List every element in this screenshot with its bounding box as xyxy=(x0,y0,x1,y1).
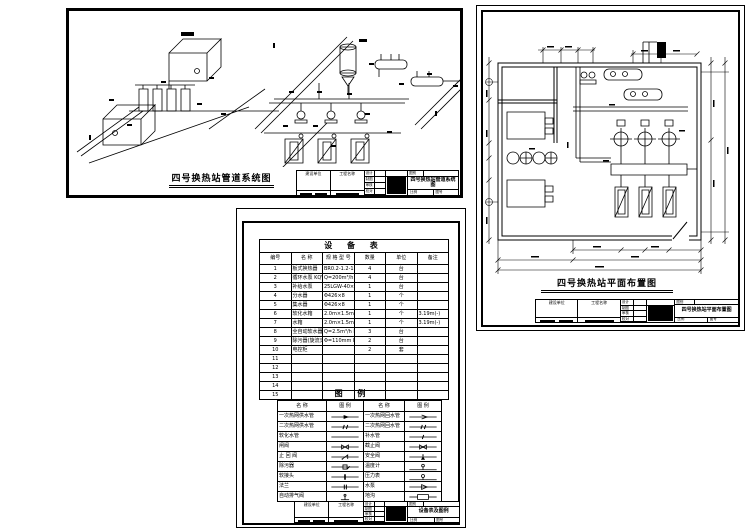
equipment-cell: 软化水箱 xyxy=(291,310,323,319)
equipment-cell xyxy=(386,364,418,373)
equipment-cell xyxy=(417,364,449,373)
equipment-cell xyxy=(323,373,355,382)
legend-symbol-cell xyxy=(405,412,442,422)
equipment-cell: 补给水泵 xyxy=(291,283,323,292)
tb-signature-row: 校对 xyxy=(621,317,646,323)
equipment-col-header: 规 格 型 号 xyxy=(323,253,355,265)
tb-project-cell: 工程名称 xyxy=(578,300,620,322)
legend-name: 闸阀 xyxy=(278,442,327,452)
equipment-col-header: 数量 xyxy=(354,253,386,265)
equipment-cell: 12 xyxy=(260,364,292,373)
drawing-title-plan: 四号换热站平面布置图 xyxy=(541,276,673,293)
tb-project-cell: 工程名称 xyxy=(331,171,365,195)
legend-row: 软化水管补水管 xyxy=(278,432,442,442)
equipment-cell: 1 xyxy=(260,265,292,274)
equipment-cell: 4 xyxy=(354,265,386,274)
equipment-row: 5集水器Φ426×81个 xyxy=(260,301,449,310)
legend-symbol-tick2 xyxy=(408,423,438,431)
equipment-cell: 7 xyxy=(260,319,292,328)
annotation-marks xyxy=(89,39,458,147)
equipment-cell xyxy=(386,373,418,382)
tb-title-area: 图别四号换热站管道系统图比例图号 xyxy=(408,171,458,195)
legend-col-header: 名 称 xyxy=(278,401,327,412)
equipment-cell: 集水器 xyxy=(291,301,323,310)
legend-symbol-cell xyxy=(327,492,364,502)
equipment-cell xyxy=(417,292,449,301)
legend-col-header: 图 例 xyxy=(405,401,442,412)
equipment-cell: 板式换热器 xyxy=(291,265,323,274)
equipment-cell: 13 xyxy=(260,373,292,382)
legend-symbol-gauge xyxy=(408,473,438,481)
equipment-cell: 8 xyxy=(260,328,292,337)
plan-top-equipment xyxy=(573,42,688,111)
legend-name: 安全阀 xyxy=(364,452,405,462)
equipment-cell: 分水器 xyxy=(291,292,323,301)
equipment-cell: Q=200m³/h H=25.8m N=22kW xyxy=(323,274,355,283)
legend-row: 二次热网供水管二次热网回水管 xyxy=(278,422,442,432)
equipment-cell: 循环水泵 KQW200/258-22/4-WALE xyxy=(291,274,323,283)
titleblock-plan: 建设单位工程名称设计制图审核校对图别四号换热站平面布置图比例图号 xyxy=(535,299,739,323)
equipment-cell xyxy=(291,355,323,364)
legend-row: 闸阀截止阀 xyxy=(278,442,442,452)
equipment-cell: 2.0m×1.5m×1.5m 钢板焊制 xyxy=(323,310,355,319)
equipment-cell: 全自动软水器 DXZR-160 xyxy=(291,328,323,337)
titleblock-system: 建设单位工程名称设计制图审核校对图别四号换热站管道系统图比例图号 xyxy=(296,170,459,196)
equipment-cell: 1 xyxy=(354,310,386,319)
legend-name: 止 回 阀 xyxy=(278,452,327,462)
equipment-cell: 3.19m(-) xyxy=(417,310,449,319)
legend-name: 法兰 xyxy=(278,482,327,492)
equipment-cell xyxy=(386,355,418,364)
isometric-piping-drawing xyxy=(69,11,460,167)
equipment-cell xyxy=(417,346,449,355)
tb-stamp xyxy=(648,306,673,322)
legend-name: 自动排气阀 xyxy=(278,492,327,502)
legend-symbol-thermo xyxy=(408,463,438,471)
tb-stamp xyxy=(387,177,407,194)
tb-org-cell: 建设单位 xyxy=(536,300,578,322)
equipment-cell xyxy=(417,274,449,283)
legend-name: 补水管 xyxy=(364,432,405,442)
equipment-table: 设 备 表编号名 称规 格 型 号数量单位备注1板式换热器BR0.2-1.2-1… xyxy=(259,239,449,400)
legend-table: 名 称图 例名 称图 例一次热网供水管一次热网回水管二次热网供水管二次热网回水管… xyxy=(277,400,442,502)
equipment-cell: 4 xyxy=(354,274,386,283)
plan-left-equipment xyxy=(507,112,557,207)
legend-name: 地沟 xyxy=(364,492,405,502)
legend-symbol-cell xyxy=(327,452,364,462)
equipment-cell: Q=2.5m³/h DN=40mm xyxy=(323,328,355,337)
equipment-cell: 3 xyxy=(354,328,386,337)
equipment-row: 6软化水箱2.0m×1.5m×1.5m 钢板焊制1个3.19m(-) xyxy=(260,310,449,319)
legend-symbol-cell xyxy=(405,422,442,432)
equipment-cell: 4 xyxy=(260,292,292,301)
tb-stamp xyxy=(386,507,406,521)
tb-org-cell: 建设单位 xyxy=(295,502,329,522)
legend-name: 一次热网供水管 xyxy=(278,412,327,422)
equipment-cell: 1 xyxy=(354,301,386,310)
legend-symbol-cell xyxy=(405,432,442,442)
legend-symbol-cell xyxy=(405,482,442,492)
legend-symbol-gate xyxy=(330,443,360,451)
equipment-col-header: 备注 xyxy=(417,253,449,265)
legend-row: 自动排气阀地沟 xyxy=(278,492,442,502)
legend-name: 温度计 xyxy=(364,462,405,472)
tb-stamp-cell xyxy=(385,502,408,522)
equipment-cell: 个 xyxy=(386,319,418,328)
equipment-cell xyxy=(323,364,355,373)
legend-name: 水泵 xyxy=(364,482,405,492)
tb-signature-rows: 设计制图审核校对 xyxy=(621,300,647,322)
equipment-cell xyxy=(291,364,323,373)
equipment-row: 11 xyxy=(260,355,449,364)
legend-symbol-cell xyxy=(327,422,364,432)
legend-row: 一次热网供水管一次热网回水管 xyxy=(278,412,442,422)
equipment-row: 1板式换热器BR0.2-1.2-16-14台 xyxy=(260,265,449,274)
sheet-plan-layout: 四号换热站平面布置图 建设单位工程名称设计制图审核校对图别四号换热站平面布置图比… xyxy=(476,5,745,331)
equipment-cell: 电控柜 xyxy=(291,346,323,355)
equipment-col-header: 单位 xyxy=(386,253,418,265)
legend-row: 止 回 阀安全阀 xyxy=(278,452,442,462)
tb-org-cell: 建设单位 xyxy=(297,171,331,195)
equipment-table-title: 设 备 表 xyxy=(260,240,449,253)
equipment-row: 10电控柜2套 xyxy=(260,346,449,355)
equipment-row: 9除污器(旋流式) DXW-160Φ=110mm L=500mm2台 xyxy=(260,337,449,346)
legend-symbol-tick2 xyxy=(330,423,360,431)
legend-symbol-arrowO xyxy=(408,413,438,421)
legend-symbol-cell xyxy=(327,472,364,482)
legend-name: 软接头 xyxy=(278,472,327,482)
equipment-cell xyxy=(417,283,449,292)
equipment-cell xyxy=(323,355,355,364)
legend-symbol-cell xyxy=(405,472,442,482)
equipment-cell: 台 xyxy=(386,283,418,292)
tb-stamp-cell xyxy=(647,300,675,322)
equipment-cell xyxy=(354,355,386,364)
legend-symbol-line xyxy=(330,433,360,441)
equipment-cell: 3.19m(-) xyxy=(417,319,449,328)
equipment-cell xyxy=(354,364,386,373)
legend-symbol-pump xyxy=(408,483,438,491)
tb-signature-row: 校对 xyxy=(364,517,384,522)
equipment-cell: Φ426×8 xyxy=(323,292,355,301)
equipment-cell xyxy=(417,328,449,337)
tb-drawing-title: 四号换热站平面布置图 xyxy=(675,305,738,316)
legend-symbol-cell xyxy=(405,442,442,452)
legend-title: 图 例 xyxy=(277,388,429,399)
tb-project-cell: 工程名称 xyxy=(329,502,363,522)
legend-symbol-cell xyxy=(327,462,364,472)
equipment-cell: 2 xyxy=(354,346,386,355)
iso-left-cluster xyxy=(77,32,279,163)
equipment-cell: Φ=110mm L=500mm xyxy=(323,337,355,346)
tb-stamp-cell xyxy=(386,171,409,195)
drawing-title-system: 四号换热站管道系统图 xyxy=(169,171,274,188)
equipment-cell: 套 xyxy=(386,346,418,355)
equipment-cell: 台 xyxy=(386,265,418,274)
tb-signature-row: 校对 xyxy=(365,189,385,195)
equipment-cell: 个 xyxy=(386,292,418,301)
equipment-cell: 2.0m×1.5m×1.5m 钢板焊制 xyxy=(323,319,355,328)
equipment-cell: 10 xyxy=(260,346,292,355)
equipment-row: 3补给水泵25LGW-40×21台 xyxy=(260,283,449,292)
equipment-cell: 5 xyxy=(260,301,292,310)
equipment-cell xyxy=(291,373,323,382)
tb-signature-rows: 设计制图审核校对 xyxy=(364,502,385,522)
tb-drawing-title: 设备表及图例 xyxy=(408,507,459,517)
tb-title-area: 图别四号换热站平面布置图比例图号 xyxy=(675,300,738,322)
equipment-cell: 台 xyxy=(386,274,418,283)
equipment-cell xyxy=(417,265,449,274)
legend-symbol-cell xyxy=(327,432,364,442)
equipment-cell: 个 xyxy=(386,310,418,319)
sheet-piping-system: 四号换热站管道系统图 建设单位工程名称设计制图审核校对图别四号换热站管道系统图比… xyxy=(66,8,463,198)
sheet-equipment-legend: 设 备 表编号名 称规 格 型 号数量单位备注1板式换热器BR0.2-1.2-1… xyxy=(236,208,466,528)
equipment-row: 13 xyxy=(260,373,449,382)
iso-right-cluster xyxy=(255,37,460,167)
titleblock-sheet: 建设单位工程名称设计制图审核校对图别设备表及图例比例图号 xyxy=(294,501,460,523)
tb-title-area: 图别设备表及图例比例图号 xyxy=(408,502,459,522)
equipment-col-header: 名 称 xyxy=(291,253,323,265)
equipment-cell: 1 xyxy=(354,283,386,292)
equipment-row: 4分水器Φ426×81个 xyxy=(260,292,449,301)
legend-symbol-cell xyxy=(405,462,442,472)
equipment-row: 7水箱2.0m×1.5m×1.5m 钢板焊制1个3.19m(-) xyxy=(260,319,449,328)
legend-name: 软化水管 xyxy=(278,432,327,442)
equipment-col-header: 编号 xyxy=(260,253,292,265)
legend-name: 二次热网回水管 xyxy=(364,422,405,432)
legend-symbol-cell xyxy=(327,412,364,422)
equipment-cell: 台 xyxy=(386,337,418,346)
legend-row: 除污器温度计 xyxy=(278,462,442,472)
equipment-cell: 水箱 xyxy=(291,319,323,328)
legend-symbol-strainer xyxy=(330,463,360,471)
equipment-row: 8全自动软水器 DXZR-160Q=2.5m³/h DN=40mm3台 xyxy=(260,328,449,337)
equipment-cell xyxy=(417,373,449,382)
legend-symbol-cell xyxy=(327,482,364,492)
dimension-text-marks xyxy=(486,46,729,268)
equipment-cell: 2 xyxy=(260,274,292,283)
legend-col-header: 图 例 xyxy=(327,401,364,412)
cad-drawing-screenshot: 四号换热站管道系统图 建设单位工程名称设计制图审核校对图别四号换热站管道系统图比… xyxy=(0,0,749,530)
equipment-cell: 9 xyxy=(260,337,292,346)
legend-row: 软接头压力表 xyxy=(278,472,442,482)
legend-name: 一次热网回水管 xyxy=(364,412,405,422)
equipment-cell xyxy=(417,337,449,346)
equipment-cell: 3 xyxy=(260,283,292,292)
equipment-cell xyxy=(417,355,449,364)
legend-symbol-cell xyxy=(405,492,442,502)
equipment-row: 2循环水泵 KQW200/258-22/4-WALEQ=200m³/h H=25… xyxy=(260,274,449,283)
tb-signature-rows: 设计制图审核校对 xyxy=(365,171,386,195)
tb-drawing-title: 四号换热站管道系统图 xyxy=(408,177,458,189)
equipment-cell: Φ426×8 xyxy=(323,301,355,310)
legend-symbol-tick1 xyxy=(408,433,438,441)
equipment-cell xyxy=(354,373,386,382)
equipment-cell: 台 xyxy=(386,328,418,337)
legend-name: 除污器 xyxy=(278,462,327,472)
equipment-cell: BR0.2-1.2-16-1 xyxy=(323,265,355,274)
equipment-cell: 除污器(旋流式) DXW-160 xyxy=(291,337,323,346)
equipment-cell: 2 xyxy=(354,337,386,346)
equipment-cell: 1 xyxy=(354,319,386,328)
legend-symbol-vent xyxy=(330,493,360,501)
equipment-cell: 11 xyxy=(260,355,292,364)
legend-symbol-cell xyxy=(405,452,442,462)
equipment-cell xyxy=(323,346,355,355)
legend-col-header: 名 称 xyxy=(364,401,405,412)
legend-symbol-flex xyxy=(330,473,360,481)
legend-symbol-relief xyxy=(408,453,438,461)
legend-name: 压力表 xyxy=(364,472,405,482)
equipment-row: 12 xyxy=(260,364,449,373)
legend-name: 截止阀 xyxy=(364,442,405,452)
legend-name: 二次热网供水管 xyxy=(278,422,327,432)
legend-symbol-flange xyxy=(330,483,360,491)
plan-pump-group xyxy=(576,67,697,217)
legend-symbol-cell xyxy=(327,442,364,452)
plan-view-drawing xyxy=(483,12,739,274)
legend-row: 法兰水泵 xyxy=(278,482,442,492)
equipment-cell: 25LGW-40×2 xyxy=(323,283,355,292)
equipment-cell xyxy=(417,301,449,310)
equipment-cell: 个 xyxy=(386,301,418,310)
legend-symbol-box xyxy=(408,493,438,501)
legend-symbol-arrowF xyxy=(330,413,360,421)
equipment-cell: 1 xyxy=(354,292,386,301)
legend-symbol-check xyxy=(330,453,360,461)
legend-symbol-globe xyxy=(408,443,438,451)
equipment-cell: 6 xyxy=(260,310,292,319)
